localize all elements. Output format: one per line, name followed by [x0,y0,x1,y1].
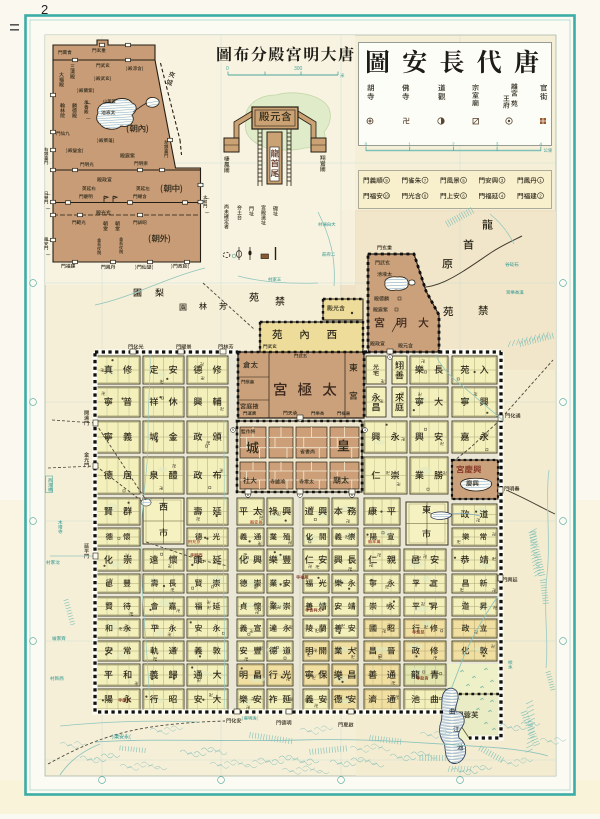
svg-text:1: 1 [389,355,391,359]
svg-text:3: 3 [496,142,499,148]
svg-text:1: 1 [408,142,411,148]
svg-text:3: 3 [364,428,366,432]
svg-text:0: 0 [226,66,229,72]
svg-text:0: 0 [365,142,368,148]
svg-text:10: 10 [384,193,389,198]
svg-text:2: 2 [452,142,455,148]
svg-text:4: 4 [539,142,542,148]
svg-text:300: 300 [294,66,303,72]
svg-text:米: 米 [340,72,345,79]
svg-text:9: 9 [232,428,234,432]
